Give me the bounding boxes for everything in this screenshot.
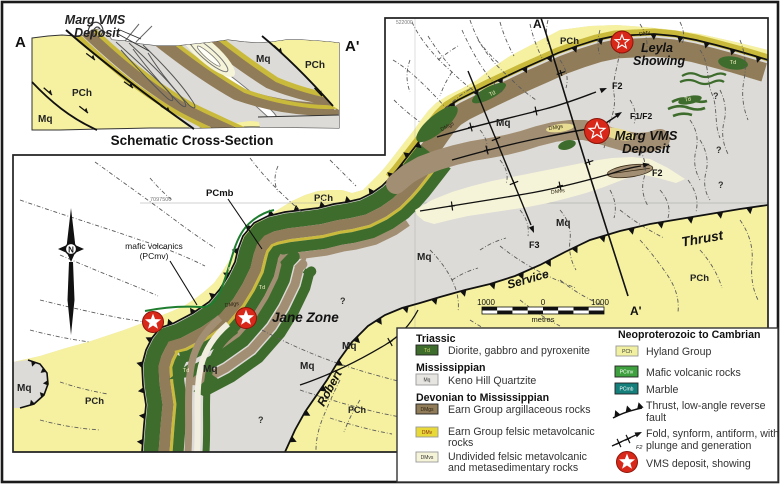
svg-text:?: ? (340, 296, 346, 306)
svg-text:Td: Td (225, 266, 231, 272)
svg-text:522000: 522000 (396, 20, 413, 26)
svg-text:Mq: Mq (342, 341, 356, 352)
svg-text:N: N (68, 246, 74, 255)
svg-text:Earn Group argillaceous rocks: Earn Group argillaceous rocks (448, 404, 591, 416)
svg-text:Marg VMS: Marg VMS (65, 13, 126, 27)
svg-text:?: ? (718, 180, 724, 190)
svg-text:Schematic Cross-Section: Schematic Cross-Section (111, 133, 274, 148)
svg-text:PCh: PCh (348, 405, 366, 415)
svg-text:?: ? (713, 91, 719, 101)
svg-text:DMgs: DMgs (420, 407, 434, 413)
svg-text:Keno Hill Quartzite: Keno Hill Quartzite (448, 375, 536, 387)
svg-text:F3: F3 (529, 240, 540, 250)
svg-text:A: A (15, 34, 26, 51)
svg-text:Devonian to Mississippian: Devonian to Mississippian (416, 392, 549, 404)
svg-text:Showing: Showing (633, 54, 685, 68)
svg-text:Neoproterozoic to Cambrian: Neoproterozoic to Cambrian (618, 329, 760, 341)
svg-text:PCh: PCh (305, 60, 325, 71)
svg-text:PCh: PCh (690, 273, 709, 284)
svg-text:Thrust, low-angle reverse: Thrust, low-angle reverse (646, 400, 766, 412)
svg-text:Mq: Mq (300, 361, 314, 372)
svg-text:DMv: DMv (422, 430, 433, 436)
svg-text:1000: 1000 (477, 298, 495, 307)
svg-text:PCh: PCh (72, 88, 92, 99)
svg-text:Leyla: Leyla (641, 41, 673, 55)
svg-text:VMS deposit, showing: VMS deposit, showing (646, 458, 751, 470)
svg-text:Deposit: Deposit (622, 141, 670, 156)
svg-text:F2: F2 (612, 81, 623, 91)
svg-text:rocks: rocks (448, 437, 473, 449)
svg-text:Hyland Group: Hyland Group (646, 346, 711, 358)
svg-text:Mq: Mq (417, 252, 431, 263)
svg-text:and metasedimentary rocks: and metasedimentary rocks (448, 462, 578, 474)
svg-text:F2: F2 (636, 445, 642, 451)
svg-text:F2: F2 (652, 168, 663, 178)
svg-text:PCmb: PCmb (206, 188, 234, 199)
svg-text:?: ? (716, 145, 722, 155)
svg-text:plunge and generation: plunge and generation (646, 440, 752, 452)
svg-text:Td: Td (424, 348, 430, 354)
svg-text:PCmb: PCmb (620, 387, 634, 393)
svg-text:1000: 1000 (591, 298, 609, 307)
svg-text:Mq: Mq (424, 378, 431, 384)
svg-text:0: 0 (541, 298, 546, 307)
svg-text:Mq: Mq (496, 118, 510, 129)
svg-text:A: A (533, 17, 542, 31)
svg-text:PCmv: PCmv (620, 370, 634, 376)
svg-text:A': A' (630, 304, 642, 318)
svg-text:Mississippian: Mississippian (416, 362, 485, 374)
svg-text:Marble: Marble (646, 384, 678, 396)
svg-text:Mq: Mq (203, 364, 217, 375)
svg-text:Mafic volcanic rocks: Mafic volcanic rocks (646, 367, 741, 379)
svg-text:PCh: PCh (622, 349, 632, 355)
svg-text:Td: Td (730, 60, 736, 66)
svg-text:Diorite, gabbro and pyroxenite: Diorite, gabbro and pyroxenite (448, 345, 590, 357)
svg-text:Fold, synform, antiform, with: Fold, synform, antiform, with (646, 428, 779, 440)
svg-text:PCh: PCh (85, 396, 104, 407)
svg-text:DMvs: DMvs (421, 455, 434, 461)
svg-text:Deposit: Deposit (74, 26, 121, 40)
svg-text:Mq: Mq (38, 114, 52, 125)
svg-text:Jane Zone: Jane Zone (272, 310, 339, 325)
svg-text:fault: fault (646, 412, 666, 424)
svg-text:metres: metres (532, 315, 555, 324)
svg-text:PCh: PCh (560, 36, 579, 47)
svg-text:A': A' (345, 38, 359, 55)
svg-text:?: ? (258, 415, 264, 425)
svg-text:Mq: Mq (256, 54, 270, 65)
svg-text:(PCmv): (PCmv) (140, 251, 169, 261)
svg-text:F1/F2: F1/F2 (630, 111, 652, 121)
svg-text:mafic volcanics: mafic volcanics (125, 241, 183, 251)
svg-text:Td: Td (183, 368, 189, 374)
svg-text:Td: Td (259, 285, 265, 291)
svg-text:Triassic: Triassic (416, 333, 456, 345)
svg-text:Mq: Mq (17, 383, 31, 394)
svg-text:Mq: Mq (556, 218, 570, 229)
svg-text:Td: Td (684, 97, 691, 104)
svg-text:Td: Td (321, 197, 327, 203)
svg-text:7097500: 7097500 (150, 197, 171, 203)
